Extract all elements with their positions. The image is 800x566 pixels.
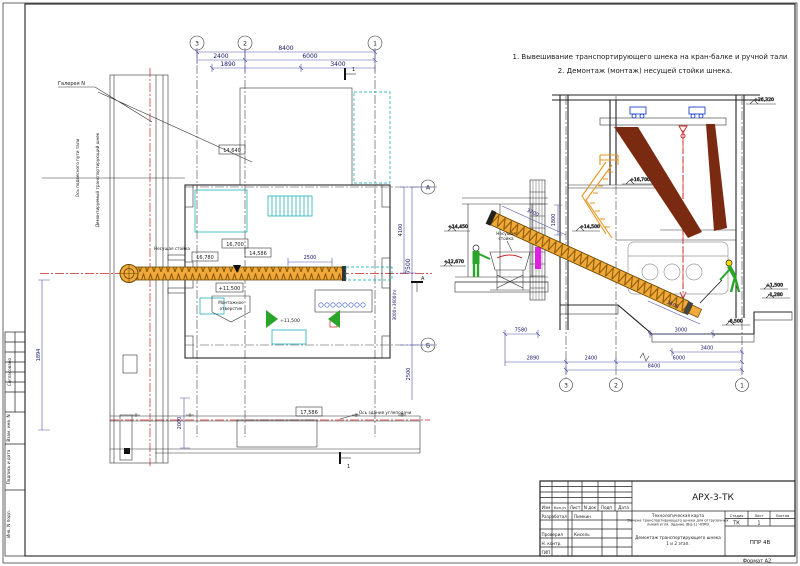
dim-8400-plan: 8400 [278, 45, 293, 52]
dim-2400-sec: 2400 [585, 356, 598, 362]
dim-1894: 1894 [36, 349, 42, 362]
elev-16700-plan: 16,700 [226, 242, 244, 248]
sheet-name-2: 1 и 2 этап. [666, 541, 689, 546]
sheet-name-1: Демонтаж транспортирующего шнека [635, 535, 721, 540]
h-sheets: Листов [776, 514, 789, 518]
h-list: Лист [570, 505, 581, 510]
h-data: Дата [618, 505, 629, 510]
role-checker: Проверил [542, 532, 564, 537]
role-developer: Разработал [542, 514, 568, 519]
dim-4100-plan: 4100 [398, 224, 404, 237]
elev-14586: 14,586 [249, 251, 267, 257]
section-mark-1-top: 1 [352, 67, 355, 73]
section-grid-1: 1 [740, 383, 744, 390]
dim-3400-plan: 3400 [330, 61, 345, 68]
stamp-podp: Подпись и дата [6, 449, 11, 484]
stamp-vzam: Взам. инв. N [6, 414, 11, 441]
section-mark-A: А [421, 276, 425, 282]
h-podp: Подп [601, 505, 613, 510]
dim-2400-plan: 2400 [213, 53, 228, 60]
doc-code: АРХ-3-ТК [692, 493, 734, 503]
section-grid-3: 3 [564, 383, 568, 390]
axis-note: Ось здания углеподачи [359, 410, 412, 415]
elev-17586: 17,586 [300, 410, 318, 416]
dim-2500-plan: 2500 [406, 368, 412, 381]
elev-1500: +1,500 [766, 283, 783, 289]
elev-14640: 14,640 [223, 148, 241, 154]
dim-opening-plan: 3000×3600(h) [392, 289, 397, 320]
dim-2890: 2890 [527, 356, 540, 362]
note-line-1: 1. Вывешивание транспортирующего шнека н… [513, 53, 788, 61]
stamp-inv: Инв. N подл. [6, 510, 11, 538]
h-stage: Стадия [730, 514, 744, 518]
h-izm: Изм [542, 505, 551, 510]
magenta-marker [535, 247, 541, 269]
elev-11500-b: +11,500 [280, 318, 300, 324]
format-label: Формат А2 [743, 559, 771, 565]
gallery-label: Галерея N [58, 81, 85, 87]
dim-2500-top: 2500 [304, 255, 317, 261]
rail-axis-note: Ось подвесного пути тали [75, 139, 80, 198]
note-line-2: 2. Демонтаж (монтаж) несущей стойки шнек… [558, 67, 733, 75]
stamp-agreed: Согласовано [7, 358, 12, 387]
elev-11500-a: +11,500 [219, 286, 241, 292]
h-koluch: Кол.уч [554, 506, 566, 510]
section-mark-1-bottom: 1 [347, 464, 350, 470]
section-grid-2: 2 [614, 383, 618, 390]
title-block: Изм Кол.уч Лист N док Подп Дата Разработ… [540, 481, 795, 556]
role-gip: ГИП [542, 550, 551, 555]
stand-label-plan: Несущая стойка [154, 246, 190, 251]
stage-value: ТК [732, 521, 740, 527]
doc-type: Технологическая карта [651, 513, 705, 518]
screw-note: Демонтируемый транспортирующий шнек [95, 132, 100, 227]
elev-m1280: -1,280 [768, 292, 783, 298]
drawing-sheet: Согласовано Взам. инв. N Подпись и дата … [0, 0, 800, 566]
name-developer: Пимкин [574, 514, 591, 519]
sheet-value: 1 [757, 521, 760, 527]
plan-grid-1: 1 [373, 41, 377, 48]
dim-8400-sec: 8400 [648, 364, 661, 370]
dim-2000: 2000 [177, 417, 183, 430]
h-sheet: Лист [754, 514, 763, 518]
opening-note-2: отверстие [220, 306, 243, 311]
dim-1800: 1800 [551, 214, 557, 227]
drawing-frame [3, 3, 797, 563]
role-ncontrol: Н. контр. [542, 541, 562, 546]
dim-3000: 3000 [675, 328, 688, 334]
plan-grid-2: 2 [243, 41, 247, 48]
doc-name-2: линий угля. Здание (ВЦ-1) ЧЛМЗ [647, 523, 710, 527]
dim-6000-plan: 6000 [302, 53, 317, 60]
name-checker: Кисель [574, 532, 590, 537]
plan-grid-B: Б [426, 343, 430, 350]
org-label: ППР 4В [750, 540, 771, 546]
elev-12670: +12,670 [444, 259, 464, 265]
elev-top: +26,320 [754, 97, 774, 103]
drawing-canvas: Согласовано Взам. инв. N Подпись и дата … [0, 0, 800, 566]
dim-3400-sec: 3400 [701, 346, 714, 352]
elev-m6500: -6,500 [728, 319, 743, 325]
h-ndok: N док [584, 505, 597, 510]
plan-grid-3: 3 [195, 41, 199, 48]
elev-14450: +14,450 [448, 224, 468, 230]
elev-16700-sec: +16,700 [630, 177, 650, 183]
elev-16780: 16,780 [196, 255, 214, 261]
opening-note-1: Монтажное [218, 300, 244, 305]
dim-7500-plan: 7500 [405, 258, 412, 273]
dim-6000-sec: 6000 [673, 356, 686, 362]
dim-1890-plan: 1890 [220, 61, 235, 68]
stand-label-2: стойка [498, 236, 514, 241]
dim-7580: 7580 [515, 328, 528, 334]
elev-14500-sec: +14,500 [580, 224, 600, 230]
